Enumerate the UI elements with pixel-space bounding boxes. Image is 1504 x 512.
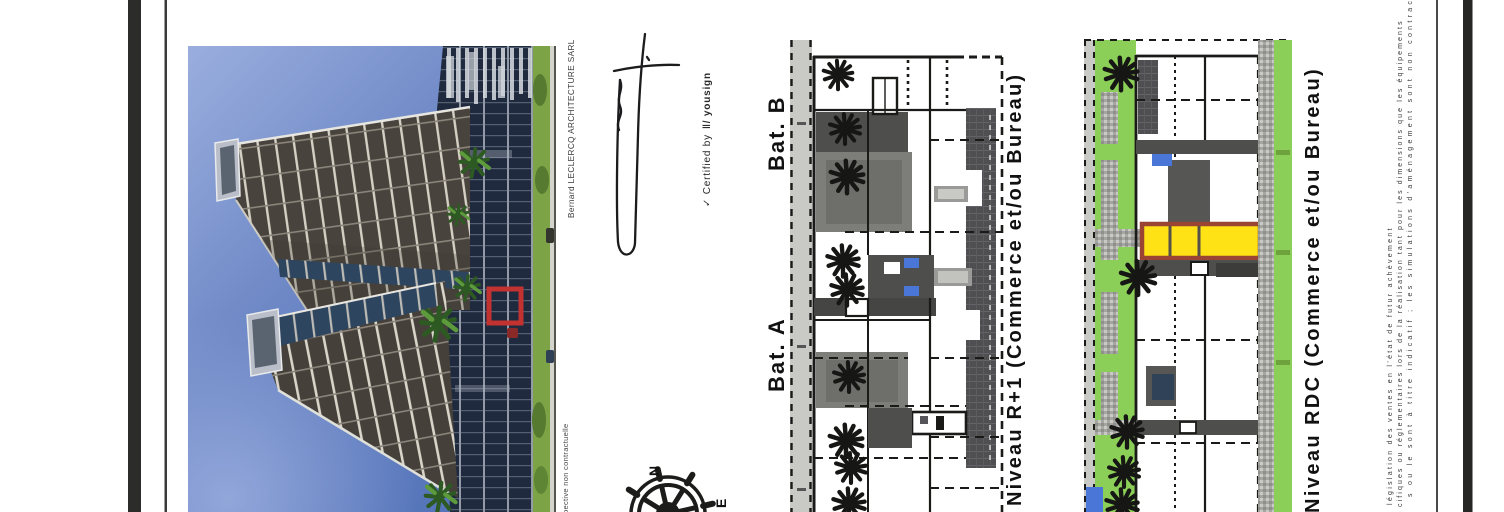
- svg-text:✓ Certified by: ✓ Certified by: [702, 134, 713, 207]
- svg-text:Bat. B: Bat. B: [764, 95, 789, 171]
- svg-text:Niveau R+1 (Commerce et/ou Bur: Niveau R+1 (Commerce et/ou Bureau): [1004, 73, 1026, 506]
- svg-text:pective non contractuelle: pective non contractuelle: [561, 424, 570, 512]
- svg-text:Niveau RDC (Commerce et/ou Bur: Niveau RDC (Commerce et/ou Bureau): [1302, 67, 1324, 512]
- svg-text:législation des ventes en l’ét: législation des ventes en l’état de futu…: [1387, 226, 1394, 505]
- svg-text:N: N: [646, 466, 662, 476]
- svg-text:cifiques ou réglementaires lor: cifiques ou réglementaires lors de la ré…: [1397, 19, 1404, 507]
- svg-text:Bat. A: Bat. A: [764, 317, 789, 392]
- svg-text:s ou le sont à titre indicatif: s ou le sont à titre indicatif ; les sim…: [1407, 0, 1414, 497]
- svg-text:‖/ yousign: ‖/ yousign: [702, 72, 713, 129]
- svg-text:Bernard LECLERCQ ARCHITECTURE: Bernard LECLERCQ ARCHITECTURE SARL: [567, 39, 576, 218]
- svg-text:E: E: [713, 499, 729, 508]
